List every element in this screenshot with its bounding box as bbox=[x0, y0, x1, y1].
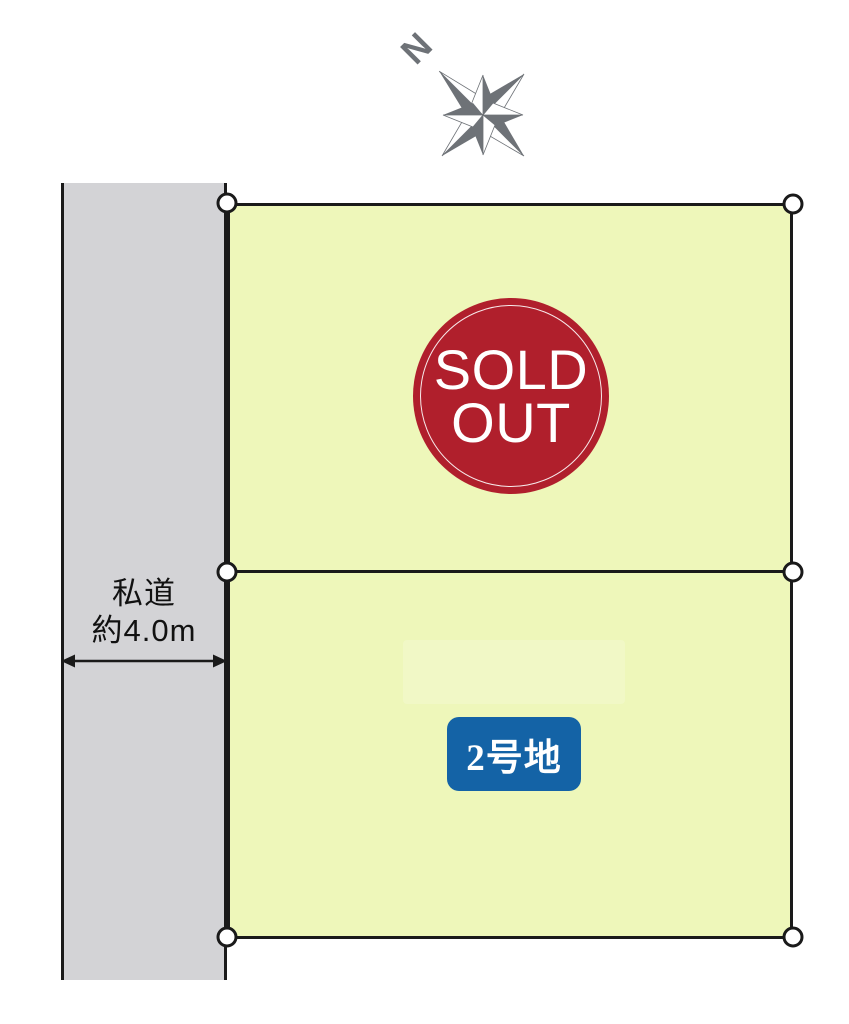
road-width-arrow bbox=[58, 645, 230, 677]
lot2-label: 2号地 bbox=[447, 717, 581, 791]
sold-out-line1: SOLD bbox=[434, 343, 589, 396]
compass-rose: N bbox=[378, 15, 588, 225]
site-plan: N bbox=[0, 0, 849, 1024]
boundary-point-marker bbox=[217, 193, 238, 214]
boundary-point-marker bbox=[217, 562, 238, 583]
faded-watermark bbox=[403, 640, 625, 704]
sold-out-line2: OUT bbox=[451, 396, 571, 449]
sold-out-badge: SOLD OUT bbox=[413, 298, 609, 494]
boundary-point-marker bbox=[217, 927, 238, 948]
boundary-point-marker bbox=[783, 194, 804, 215]
compass-north-label: N bbox=[392, 24, 439, 71]
road-label-line1: 私道 bbox=[61, 576, 227, 613]
lot2-label-text: 2号地 bbox=[466, 727, 562, 781]
road-label: 私道 約4.0m bbox=[61, 576, 227, 649]
boundary-point-marker bbox=[783, 927, 804, 948]
road-label-line2: 約4.0m bbox=[61, 613, 227, 650]
boundary-point-marker bbox=[783, 562, 804, 583]
